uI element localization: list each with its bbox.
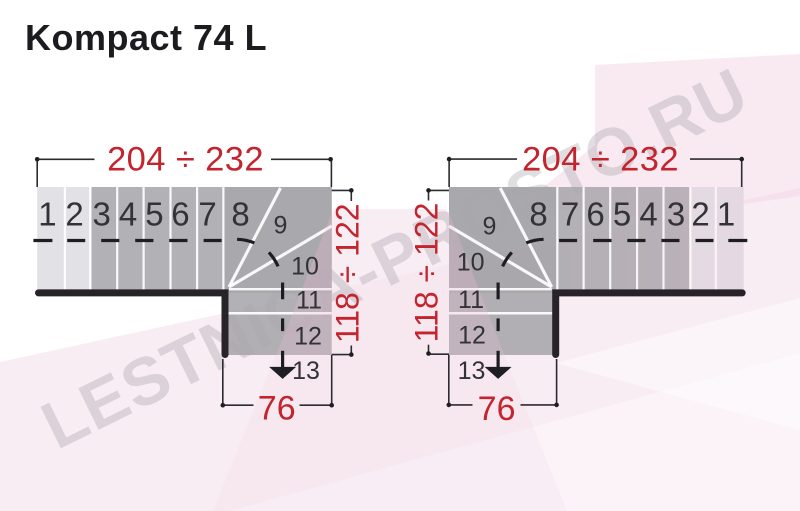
svg-text:1: 1 (38, 196, 56, 233)
svg-text:4: 4 (119, 196, 137, 233)
svg-text:11: 11 (458, 286, 484, 314)
svg-text:10: 10 (291, 253, 319, 281)
svg-text:13: 13 (458, 357, 486, 385)
svg-text:118 ÷ 122: 118 ÷ 122 (329, 203, 365, 343)
svg-text:12: 12 (294, 323, 322, 351)
svg-text:1: 1 (717, 196, 735, 233)
svg-text:5: 5 (613, 196, 631, 233)
svg-text:10: 10 (457, 249, 485, 277)
svg-text:204 ÷ 232: 204 ÷ 232 (522, 141, 679, 179)
svg-text:76: 76 (258, 390, 296, 428)
svg-text:13: 13 (292, 357, 320, 385)
svg-text:8: 8 (529, 196, 547, 233)
svg-text:8: 8 (231, 196, 249, 233)
svg-text:4: 4 (639, 196, 657, 233)
svg-text:204 ÷ 232: 204 ÷ 232 (107, 141, 264, 179)
svg-text:9: 9 (274, 211, 288, 239)
svg-text:11: 11 (296, 287, 322, 315)
svg-text:7: 7 (198, 196, 216, 233)
svg-text:7: 7 (561, 196, 579, 233)
svg-text:76: 76 (478, 390, 516, 428)
svg-text:3: 3 (667, 196, 685, 233)
svg-text:2: 2 (691, 196, 709, 233)
svg-text:Kompact 74 L: Kompact 74 L (25, 17, 267, 58)
svg-text:12: 12 (458, 322, 486, 350)
svg-text:118 ÷ 122: 118 ÷ 122 (408, 203, 444, 343)
svg-text:9: 9 (482, 213, 496, 241)
svg-text:6: 6 (171, 196, 189, 233)
svg-text:2: 2 (65, 196, 83, 233)
svg-text:5: 5 (145, 196, 163, 233)
svg-text:6: 6 (586, 196, 604, 233)
svg-text:3: 3 (93, 196, 111, 233)
